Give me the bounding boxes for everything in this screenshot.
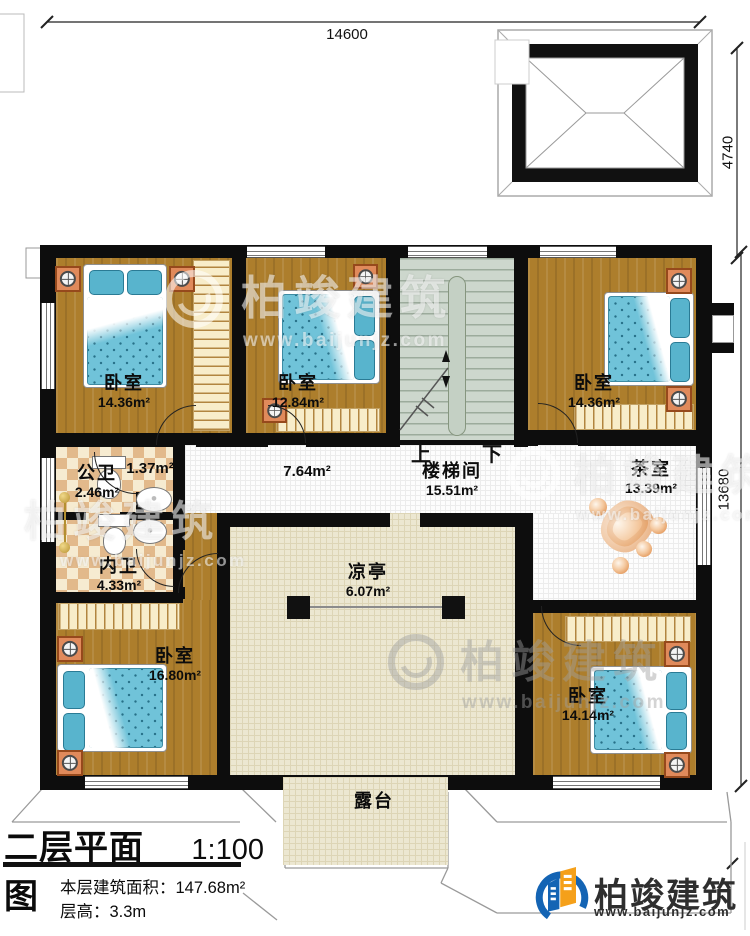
dim-right: 13680 xyxy=(716,455,733,525)
window xyxy=(540,246,616,258)
wall xyxy=(56,592,183,603)
brand-logo-icon xyxy=(534,864,590,926)
floor-area-line: 本层建筑面积：147.68m² xyxy=(60,874,245,898)
tea-stone xyxy=(650,517,667,534)
lamp-icon xyxy=(62,641,78,657)
wall xyxy=(420,513,515,527)
towel-rail-knob-icon xyxy=(59,542,70,553)
floor-height-line: 层高：3.3m xyxy=(60,898,146,922)
room-label-terrace: 露台 xyxy=(354,791,394,812)
lamp-icon xyxy=(174,271,190,287)
bed-sheet xyxy=(608,296,670,382)
hallway-area-label: 7.64m² xyxy=(283,463,331,480)
wall-bump-notch xyxy=(712,315,734,343)
room-label-bedroom-bottom-left: 卧室 16.80m² xyxy=(149,646,201,683)
wall xyxy=(581,600,696,613)
pillow xyxy=(354,340,375,380)
wall xyxy=(306,433,400,447)
window xyxy=(553,776,660,789)
sink-icon xyxy=(136,487,172,512)
window xyxy=(247,246,325,258)
pillow xyxy=(670,342,690,382)
sink-icon xyxy=(133,519,167,544)
lamp-icon xyxy=(358,269,374,285)
room-label-bedroom-top-right: 卧室 14.36m² xyxy=(568,373,620,410)
stairs-down-label: 下 xyxy=(482,438,502,467)
wall xyxy=(173,445,185,550)
lamp-icon xyxy=(669,757,685,773)
wardrobe-bottom-left xyxy=(58,603,180,630)
wall xyxy=(578,430,696,446)
wall xyxy=(217,513,230,777)
nightstand xyxy=(664,641,690,667)
nightstand xyxy=(169,266,195,292)
wall xyxy=(196,433,246,447)
room-label-tea-room: 茶室 13.39m² xyxy=(625,459,677,496)
tower-roof xyxy=(495,30,712,196)
pillow xyxy=(63,713,85,751)
window xyxy=(408,246,487,258)
closet-area-label: 1.37m² xyxy=(126,460,174,477)
nightstand xyxy=(666,386,692,412)
room-label-bedroom-top-left: 卧室 14.36m² xyxy=(98,373,150,410)
room-label-pavilion: 凉亭 6.07m² xyxy=(346,562,390,599)
wall xyxy=(230,513,390,527)
lamp-icon xyxy=(62,755,78,771)
nightstand xyxy=(664,752,690,778)
pillow xyxy=(666,672,687,710)
toilet-icon xyxy=(98,514,130,527)
tea-stone xyxy=(589,498,607,516)
wall xyxy=(56,433,156,447)
wall xyxy=(515,513,533,777)
nightstand xyxy=(55,266,81,292)
towel-rail xyxy=(64,498,66,544)
pavilion-column xyxy=(442,596,465,619)
window xyxy=(85,776,188,789)
pavilion-floor xyxy=(230,513,515,775)
wardrobe-top-left xyxy=(193,260,230,431)
stairs-up-label: 上 xyxy=(411,438,431,467)
brand-website: www.baijunjz.com xyxy=(594,904,730,919)
pillow xyxy=(127,270,162,295)
nightstand xyxy=(57,750,83,776)
wall xyxy=(56,512,86,520)
pillow xyxy=(89,270,124,295)
pillow xyxy=(354,296,375,336)
pillow xyxy=(666,712,687,750)
dim-top: 14600 xyxy=(297,26,397,43)
room-label-inner-bath: 内卫 4.33m² xyxy=(97,556,141,593)
window xyxy=(41,458,55,542)
lamp-icon xyxy=(669,646,685,662)
wall xyxy=(528,430,538,446)
dim-tower: 4740 xyxy=(720,123,737,183)
pillow xyxy=(63,671,85,709)
nightstand xyxy=(57,636,83,662)
room-label-bedroom-bottom-right: 卧室 14.14m² xyxy=(562,686,614,723)
bed-sheet xyxy=(282,294,354,380)
toilet-icon xyxy=(103,527,126,555)
floor-plan-sheet: 14600 4740 13680 xyxy=(0,0,750,936)
nightstand xyxy=(666,268,692,294)
tea-stone xyxy=(612,557,629,574)
nightstand xyxy=(353,264,378,289)
wardrobe-bottom-right xyxy=(565,616,691,642)
room-label-stairwell: 楼梯间 15.51m² xyxy=(422,461,482,498)
title-underline xyxy=(3,862,241,867)
stair-break-line xyxy=(398,258,514,440)
room-label-public-bath: 公卫 2.46m² xyxy=(75,463,119,500)
window xyxy=(41,303,55,389)
pavilion-beam xyxy=(298,606,454,608)
window xyxy=(697,468,711,565)
towel-rail-knob-icon xyxy=(59,492,70,503)
bed-sheet xyxy=(87,297,163,385)
lamp-icon xyxy=(60,271,76,287)
pillow xyxy=(670,298,690,338)
wall xyxy=(514,258,528,447)
lamp-icon xyxy=(671,273,687,289)
wall xyxy=(232,258,246,447)
lamp-icon xyxy=(671,391,687,407)
pavilion-column xyxy=(287,596,310,619)
room-label-bedroom-top-mid: 卧室 12.84m² xyxy=(272,373,324,410)
tea-stone xyxy=(636,541,652,557)
wall xyxy=(246,433,268,447)
